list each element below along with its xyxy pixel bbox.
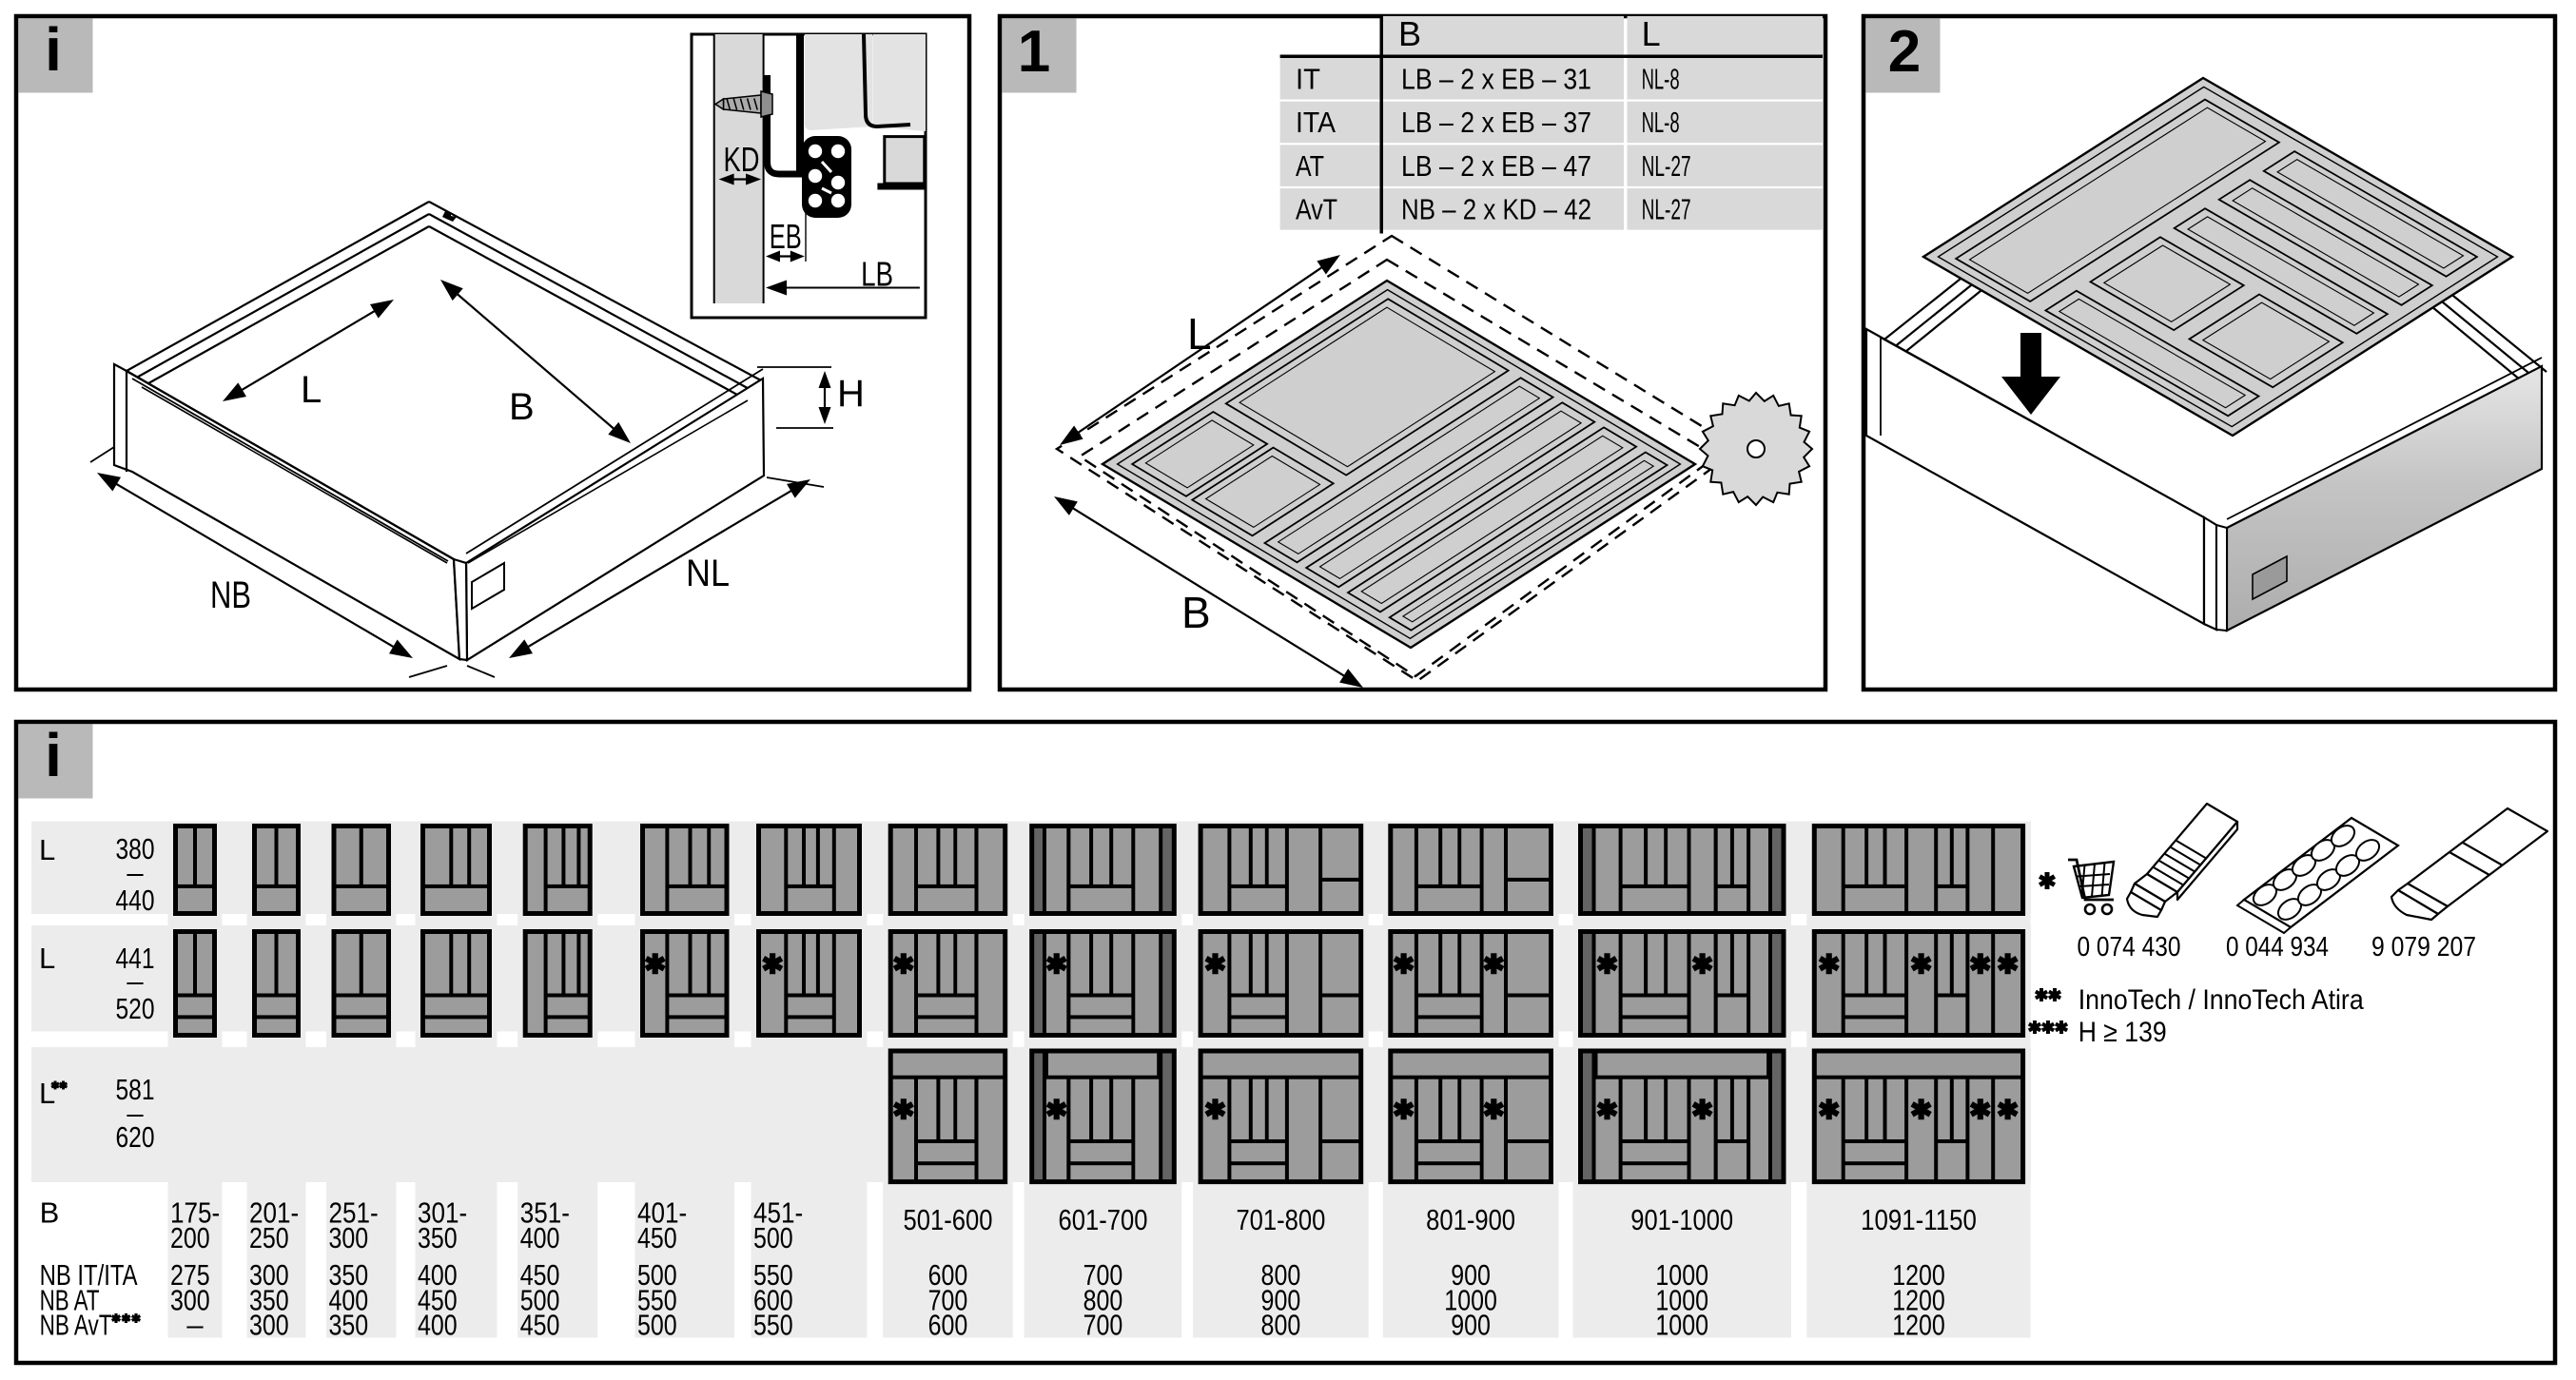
svg-text:1091-1150: 1091-1150 — [1861, 1203, 1977, 1236]
svg-text:700: 700 — [1083, 1309, 1123, 1342]
svg-text:2: 2 — [1888, 19, 1921, 85]
svg-text:400: 400 — [418, 1309, 458, 1342]
svg-text:701-800: 701-800 — [1236, 1203, 1325, 1236]
svg-text:200: 200 — [170, 1221, 210, 1254]
svg-text:L: L — [39, 942, 55, 975]
svg-text:500: 500 — [753, 1221, 793, 1254]
svg-text:InnoTech / InnoTech Atira: InnoTech / InnoTech Atira — [2078, 984, 2364, 1016]
svg-text:LB – 2 x EB – 47: LB – 2 x EB – 47 — [1401, 149, 1591, 183]
svg-text:L: L — [301, 369, 322, 411]
svg-text:620: 620 — [116, 1120, 155, 1154]
svg-text:NB – 2 x KD – 42: NB – 2 x KD – 42 — [1401, 193, 1591, 226]
svg-text:250: 250 — [249, 1221, 289, 1254]
svg-text:350: 350 — [329, 1309, 369, 1342]
svg-text:B: B — [509, 386, 535, 428]
svg-text:400: 400 — [520, 1221, 560, 1254]
svg-text:9 079 207: 9 079 207 — [2371, 932, 2476, 962]
svg-text:NL-8: NL-8 — [1642, 106, 1680, 139]
svg-text:NL-27: NL-27 — [1642, 193, 1691, 226]
svg-text:NB AvT: NB AvT — [40, 1309, 112, 1342]
svg-text:550: 550 — [753, 1309, 793, 1342]
svg-text:LB – 2 x EB – 31: LB – 2 x EB – 31 — [1401, 63, 1591, 96]
svg-text:B: B — [40, 1195, 60, 1229]
svg-text:L: L — [1642, 14, 1661, 53]
svg-text:0 044 934: 0 044 934 — [2226, 932, 2329, 962]
svg-text:B: B — [1181, 588, 1211, 637]
svg-text:NB: NB — [210, 574, 251, 616]
svg-text:1000: 1000 — [1655, 1309, 1708, 1342]
svg-text:AvT: AvT — [1296, 193, 1337, 226]
svg-text:600: 600 — [928, 1309, 968, 1342]
svg-text:300: 300 — [249, 1309, 289, 1342]
svg-text:AT: AT — [1296, 149, 1324, 183]
svg-text:500: 500 — [637, 1309, 677, 1342]
svg-text:ITA: ITA — [1296, 106, 1336, 139]
svg-text:801-900: 801-900 — [1426, 1203, 1515, 1236]
svg-text:B: B — [1398, 14, 1421, 53]
svg-text:601-700: 601-700 — [1059, 1203, 1148, 1236]
svg-text:501-600: 501-600 — [904, 1203, 993, 1236]
svg-text:LB – 2 x EB – 37: LB – 2 x EB – 37 — [1401, 106, 1591, 139]
svg-text:L: L — [39, 833, 55, 866]
svg-text:1: 1 — [1018, 19, 1050, 85]
svg-text:901-1000: 901-1000 — [1630, 1203, 1733, 1236]
svg-text:1200: 1200 — [1892, 1309, 1945, 1342]
svg-text:i: i — [45, 15, 62, 84]
svg-text:0 074 430: 0 074 430 — [2078, 932, 2181, 962]
svg-text:800: 800 — [1261, 1309, 1301, 1342]
svg-text:i: i — [45, 721, 62, 789]
svg-text:440: 440 — [116, 884, 155, 917]
svg-text:H: H — [837, 373, 865, 415]
svg-text:NL-27: NL-27 — [1642, 149, 1691, 183]
svg-text:L: L — [1187, 309, 1212, 359]
svg-text:300: 300 — [329, 1221, 369, 1254]
svg-text:900: 900 — [1451, 1309, 1491, 1342]
svg-text:H ≥ 139: H ≥ 139 — [2078, 1017, 2167, 1048]
svg-text:L: L — [39, 1077, 55, 1110]
svg-text:520: 520 — [116, 992, 155, 1025]
svg-text:NL-8: NL-8 — [1642, 63, 1680, 96]
svg-text:450: 450 — [520, 1309, 560, 1342]
svg-text:IT: IT — [1296, 63, 1320, 96]
svg-text:–: – — [186, 1309, 204, 1342]
svg-text:KD: KD — [724, 140, 760, 179]
svg-text:NL: NL — [686, 553, 730, 594]
svg-text:450: 450 — [637, 1221, 677, 1254]
svg-text:EB: EB — [770, 217, 802, 256]
svg-text:350: 350 — [418, 1221, 458, 1254]
